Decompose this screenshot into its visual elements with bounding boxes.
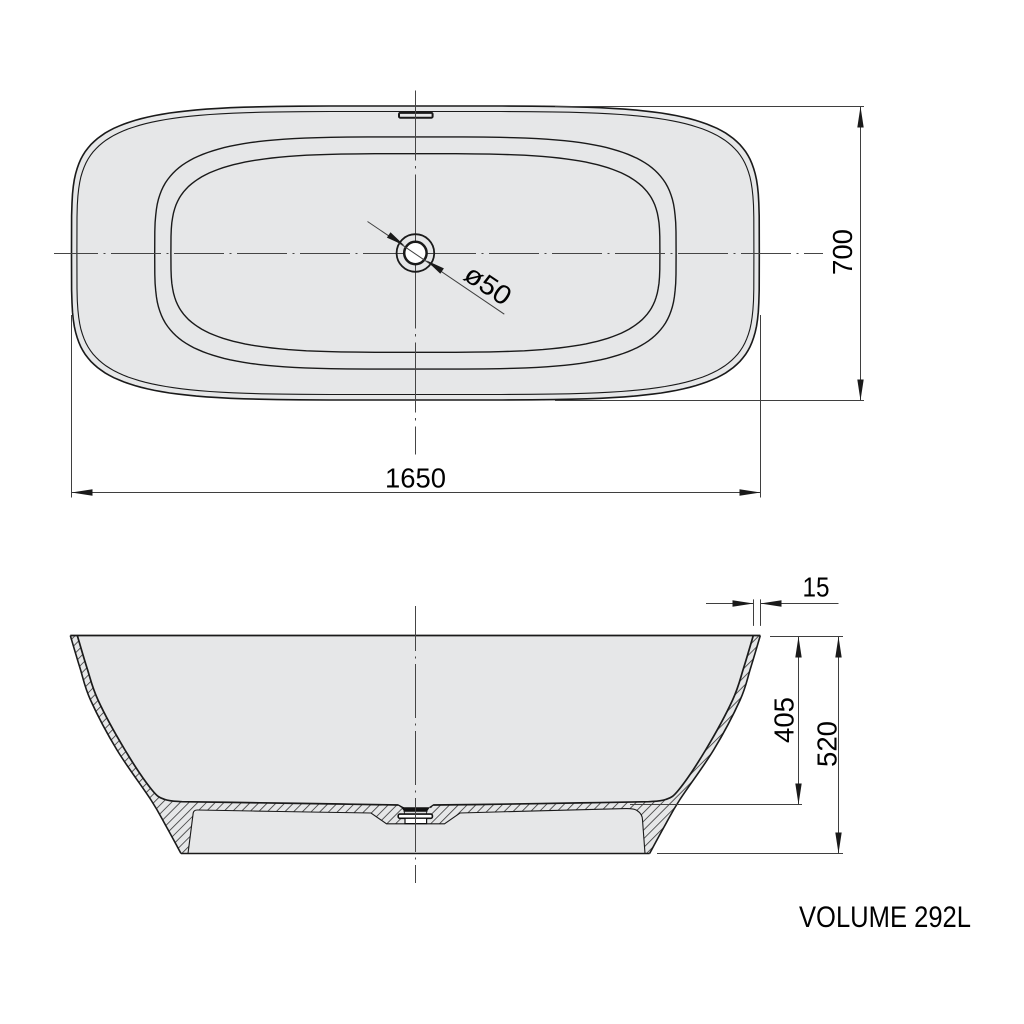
svg-text:15: 15 bbox=[803, 572, 830, 603]
svg-text:VOLUME 292L: VOLUME 292L bbox=[799, 901, 971, 934]
svg-text:520: 520 bbox=[812, 721, 843, 767]
svg-text:1650: 1650 bbox=[385, 463, 446, 494]
svg-text:700: 700 bbox=[827, 229, 858, 275]
svg-text:405: 405 bbox=[769, 697, 800, 743]
